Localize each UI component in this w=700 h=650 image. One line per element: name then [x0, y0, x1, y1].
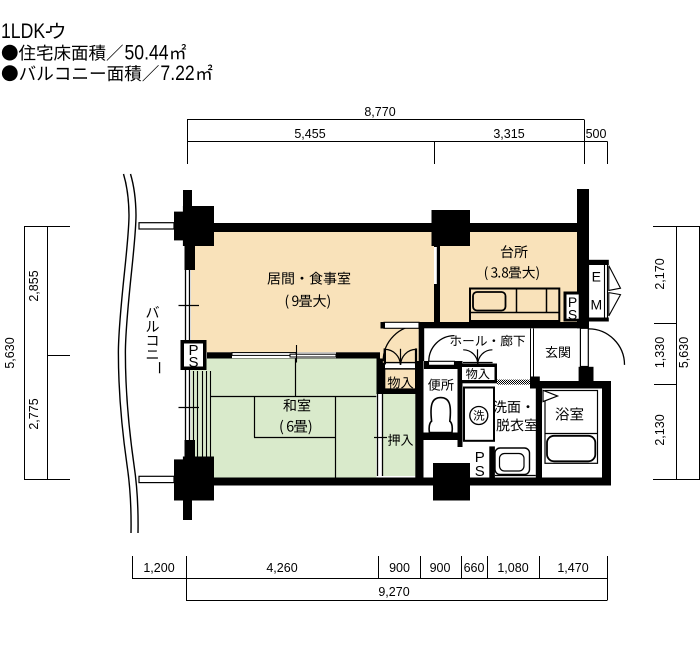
svg-text:1,080: 1,080	[497, 561, 528, 575]
svg-text:M: M	[590, 297, 602, 313]
svg-text:5,455: 5,455	[294, 127, 325, 141]
svg-text:5,630: 5,630	[677, 337, 691, 368]
svg-text:900: 900	[389, 561, 410, 575]
svg-text:S: S	[568, 307, 577, 323]
svg-text:1LDK-: 1LDK-	[1, 20, 51, 44]
svg-text:660: 660	[464, 561, 485, 575]
svg-text:2,855: 2,855	[27, 270, 41, 301]
svg-text:2,170: 2,170	[653, 258, 667, 289]
svg-text:500: 500	[586, 127, 607, 141]
svg-text:1,470: 1,470	[557, 561, 588, 575]
svg-text:2,775: 2,775	[27, 398, 41, 429]
svg-text:900: 900	[430, 561, 451, 575]
svg-text:1,200: 1,200	[143, 561, 174, 575]
svg-text:8,770: 8,770	[364, 105, 395, 119]
svg-text:2,130: 2,130	[653, 414, 667, 445]
svg-text:1,330: 1,330	[653, 337, 667, 368]
svg-text:E: E	[592, 269, 601, 285]
svg-text:5,630: 5,630	[3, 337, 17, 368]
svg-text:4,260: 4,260	[266, 561, 297, 575]
svg-text:7.22: 7.22	[160, 61, 194, 85]
svg-text:S: S	[475, 463, 485, 480]
svg-text:S: S	[188, 354, 198, 371]
svg-text:3,315: 3,315	[493, 127, 524, 141]
svg-text:9,270: 9,270	[378, 585, 409, 599]
